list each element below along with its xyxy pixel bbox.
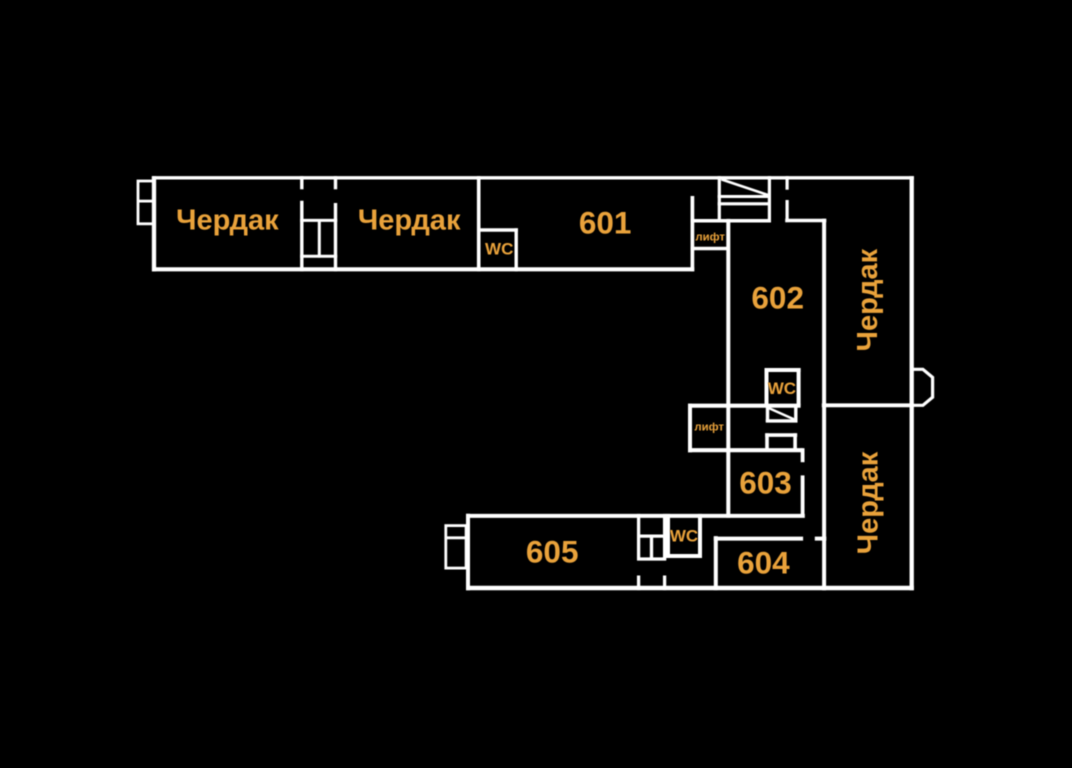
- svg-text:602: 602: [751, 280, 804, 316]
- svg-text:Чердак: Чердак: [852, 451, 884, 554]
- svg-text:лифт: лифт: [695, 231, 725, 243]
- svg-text:Чердак: Чердак: [358, 205, 461, 237]
- svg-text:Чердак: Чердак: [852, 248, 884, 351]
- svg-text:WC: WC: [485, 240, 513, 259]
- svg-text:603: 603: [739, 464, 792, 500]
- svg-text:WC: WC: [768, 379, 796, 398]
- svg-text:WC: WC: [670, 527, 698, 546]
- svg-text:Чердак: Чердак: [176, 205, 279, 237]
- svg-text:605: 605: [526, 533, 579, 569]
- svg-text:604: 604: [737, 544, 790, 580]
- svg-text:601: 601: [579, 205, 632, 241]
- svg-text:лифт: лифт: [694, 422, 724, 434]
